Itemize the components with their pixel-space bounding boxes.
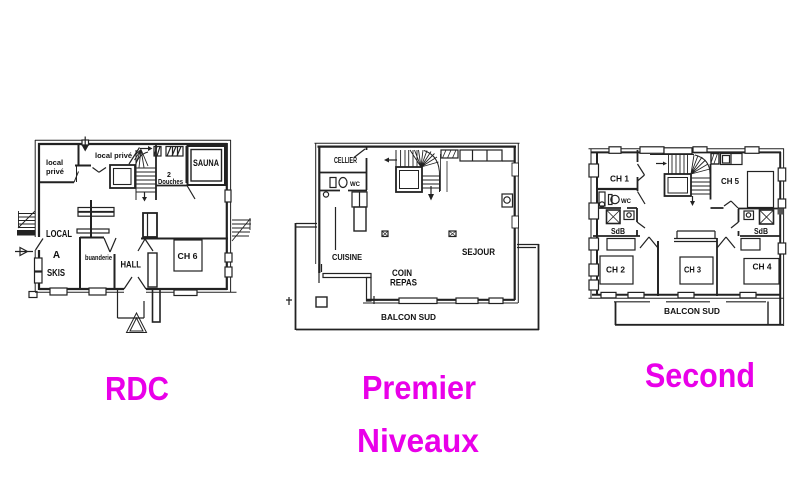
svg-text:REPAS: REPAS xyxy=(390,278,417,288)
svg-text:CH 3: CH 3 xyxy=(684,265,701,275)
svg-text:Second: Second xyxy=(645,357,755,395)
svg-text:2: 2 xyxy=(167,172,171,179)
svg-text:privé: privé xyxy=(46,167,64,176)
svg-text:WC: WC xyxy=(350,182,361,188)
svg-text:CH 2: CH 2 xyxy=(606,265,625,275)
svg-text:CH 4: CH 4 xyxy=(753,262,772,272)
svg-text:COIN: COIN xyxy=(392,268,412,278)
svg-text:RDC: RDC xyxy=(105,370,169,407)
svg-text:BALCON SUD: BALCON SUD xyxy=(381,312,436,322)
svg-text:Douches: Douches xyxy=(158,179,183,186)
svg-text:WC: WC xyxy=(621,199,632,205)
svg-text:CH 5: CH 5 xyxy=(721,176,739,186)
svg-text:local: local xyxy=(46,158,63,167)
svg-text:CH 1: CH 1 xyxy=(610,174,629,184)
svg-text:SdB: SdB xyxy=(754,227,768,236)
svg-text:buanderie: buanderie xyxy=(85,255,112,262)
svg-text:SKIS: SKIS xyxy=(47,268,65,279)
svg-text:CH 6: CH 6 xyxy=(178,251,198,261)
svg-text:Niveaux: Niveaux xyxy=(357,422,480,459)
svg-text:LOCAL: LOCAL xyxy=(46,229,72,240)
svg-text:HALL: HALL xyxy=(121,260,142,271)
svg-text:local privé: local privé xyxy=(95,151,132,160)
svg-text:CUISINE: CUISINE xyxy=(332,253,363,262)
svg-text:BALCON SUD: BALCON SUD xyxy=(664,306,720,316)
svg-text:A: A xyxy=(53,250,60,261)
svg-text:CELLIER: CELLIER xyxy=(334,156,357,165)
svg-text:SAUNA: SAUNA xyxy=(193,158,219,168)
svg-text:SEJOUR: SEJOUR xyxy=(462,247,495,257)
svg-text:SdB: SdB xyxy=(611,227,625,236)
svg-text:Premier: Premier xyxy=(362,369,476,406)
